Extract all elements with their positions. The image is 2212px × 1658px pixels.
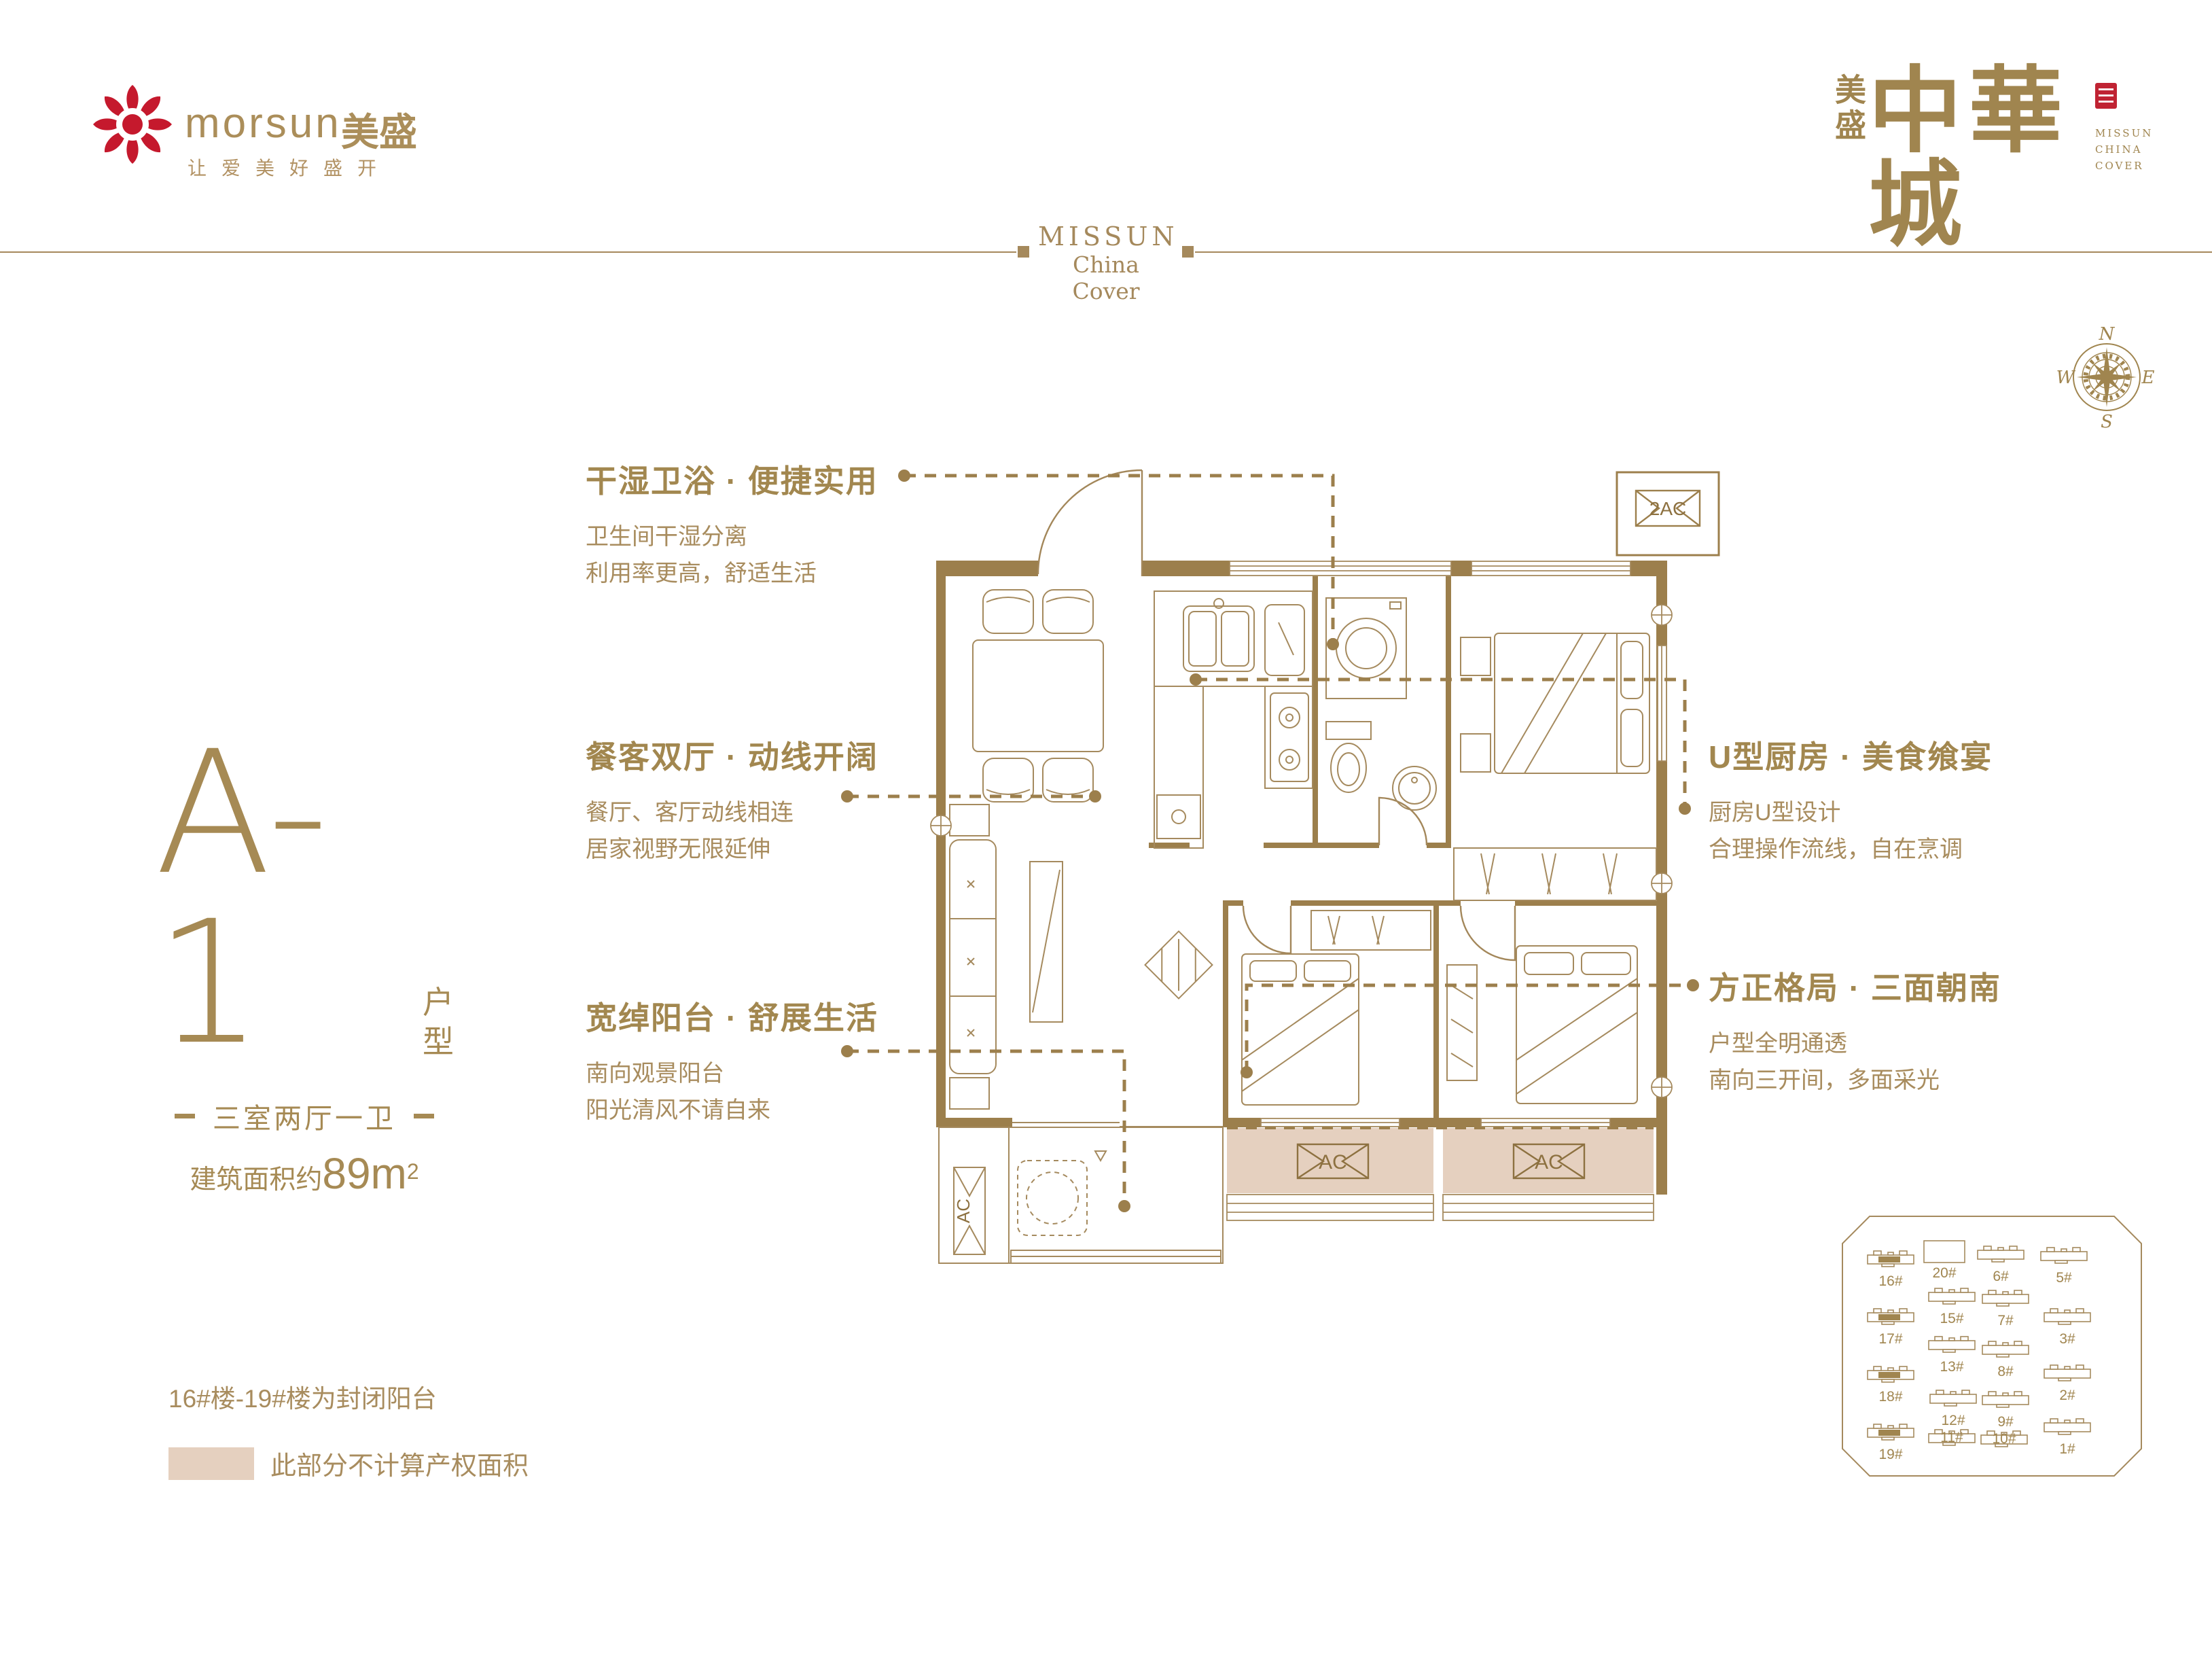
building-label: 13# <box>1940 1359 1963 1375</box>
site-building <box>1924 1241 1965 1263</box>
compass-e-label: E <box>2141 368 2155 388</box>
building-label: 12# <box>1941 1413 1965 1428</box>
site-building <box>1868 1251 1914 1267</box>
wardrobe-icon <box>1311 911 1431 950</box>
bedroom2-furniture <box>1242 911 1431 1105</box>
site-building <box>1982 1341 2029 1357</box>
site-building <box>1929 1288 1975 1304</box>
site-building <box>1868 1366 1914 1382</box>
wardrobe-icon <box>1454 848 1656 900</box>
entry-door-arc <box>1038 470 1142 574</box>
building-label: 5# <box>2056 1270 2072 1286</box>
fixture-icon <box>931 815 951 836</box>
compass-w-label: W <box>2056 368 2076 388</box>
compass-rose-icon: N S W E <box>2056 324 2155 432</box>
floor-drain-icon <box>1095 1151 1106 1161</box>
bed-icon <box>1495 633 1649 773</box>
dining-furniture <box>973 590 1103 802</box>
site-building <box>2044 1365 2090 1381</box>
bedroom3-furniture <box>1447 946 1637 1104</box>
ac-label: AC <box>1319 1151 1347 1174</box>
bathroom-furniture <box>1326 598 1436 810</box>
ac-platforms: AC AC <box>1227 1128 1654 1193</box>
building-label: 10# <box>1992 1431 2016 1447</box>
dining-chair-icon <box>1043 590 1093 633</box>
wardrobe-icon <box>1447 965 1477 1080</box>
washer-icon <box>1326 598 1406 699</box>
washing-machine-icon <box>1018 1161 1087 1235</box>
site-building <box>1978 1246 2024 1262</box>
site-building <box>2044 1419 2090 1434</box>
leader-kitchen <box>1196 680 1685 809</box>
washbasin-icon <box>1393 766 1436 810</box>
building-label: 18# <box>1878 1389 1902 1405</box>
sofa-icon <box>950 840 996 1074</box>
nightstand-icon <box>1461 734 1491 772</box>
building-label: 19# <box>1878 1447 1902 1462</box>
balcony <box>939 1123 1223 1263</box>
building-label: 1# <box>2059 1441 2075 1457</box>
kitchen-furniture <box>1154 591 1313 848</box>
living-furniture <box>950 805 1212 1109</box>
side-table-icon <box>950 805 989 836</box>
dining-chair-icon <box>983 590 1033 633</box>
master-door-icon <box>1461 906 1515 960</box>
plant-icon <box>1145 932 1213 999</box>
fixture-icon <box>1652 1077 1672 1097</box>
bed-icon <box>1516 946 1637 1104</box>
site-building <box>2041 1248 2087 1263</box>
kitchen-counter <box>1265 686 1313 788</box>
ac-label: AC <box>1535 1151 1563 1174</box>
nightstand-icon <box>1461 637 1491 675</box>
site-building <box>1930 1390 1976 1406</box>
fridge-icon <box>1157 795 1200 839</box>
leader-bath <box>904 476 1333 644</box>
compass-n-label: N <box>2099 324 2116 345</box>
master-bedroom-furniture <box>1454 633 1656 900</box>
kitchen-sink-icon <box>1183 599 1254 671</box>
ac2-label: 2AC <box>1649 498 1686 519</box>
bedroom2-door-icon <box>1243 906 1291 953</box>
dining-table-icon <box>973 640 1103 752</box>
cutting-board-icon <box>1265 605 1304 675</box>
leader-layout <box>1247 985 1693 1072</box>
site-plan: 16# 20# 6# 5# 17# 15# 7# 3# 13# 8# 2# 18… <box>1842 1216 2141 1476</box>
plan-doors <box>1038 470 1515 960</box>
building-label: 2# <box>2059 1388 2075 1403</box>
building-label: 6# <box>1993 1269 2009 1284</box>
site-building <box>1929 1337 1975 1352</box>
dining-chair-icon <box>1043 758 1093 802</box>
building-label: 17# <box>1878 1331 1902 1347</box>
toilet-icon <box>1326 722 1371 792</box>
site-building <box>1868 1424 1914 1440</box>
building-label: 8# <box>1997 1364 2014 1379</box>
floor-plan-canvas: AC AC AC <box>0 0 2212 1658</box>
fixture-icon <box>1652 605 1672 625</box>
building-label: 20# <box>1932 1265 1956 1281</box>
stove-icon <box>1270 693 1308 781</box>
bath-door-icon <box>1379 798 1427 845</box>
building-label: 7# <box>1997 1313 2014 1328</box>
side-table-icon <box>950 1078 989 1109</box>
building-label: 3# <box>2059 1331 2075 1347</box>
leader-dots <box>841 470 1699 1212</box>
bed-icon <box>1242 954 1359 1105</box>
ac-label: AC <box>953 1199 974 1223</box>
compass-s-label: S <box>2101 412 2113 432</box>
fixture-icon <box>1652 873 1672 894</box>
leader-lines <box>847 476 1693 1206</box>
site-building <box>1982 1392 2029 1407</box>
tv-cabinet-icon <box>1030 862 1063 1022</box>
site-building <box>1868 1309 1914 1324</box>
building-label: 11# <box>1940 1430 1963 1445</box>
building-label: 15# <box>1940 1311 1963 1326</box>
building-label: 16# <box>1878 1273 1902 1289</box>
site-building <box>1982 1290 2029 1306</box>
building-label: 9# <box>1997 1414 2014 1430</box>
site-building <box>2044 1309 2090 1324</box>
brochure-page: morsun 美盛 让爱美好盛开 美盛 中華城 MISSUN CHINA COV… <box>0 0 2212 1658</box>
